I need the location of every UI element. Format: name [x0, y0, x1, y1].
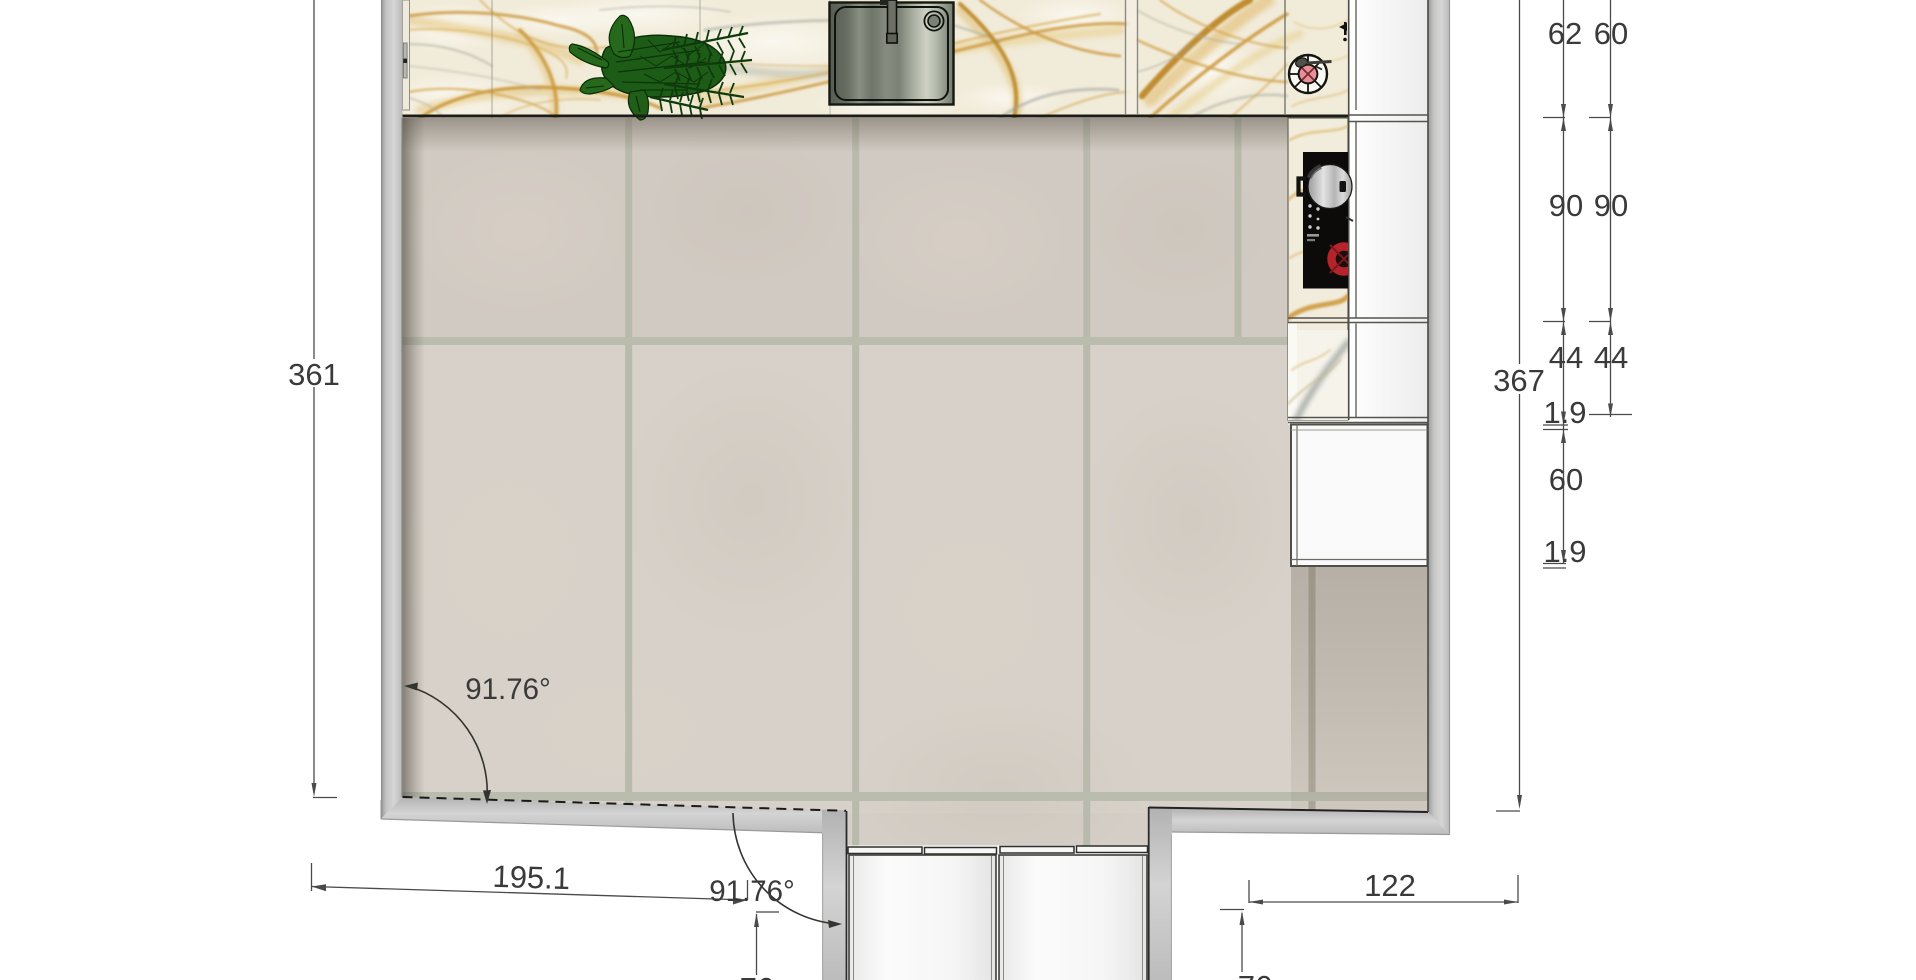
svg-text:44: 44: [1594, 340, 1628, 375]
svg-text:195.1: 195.1: [492, 859, 571, 896]
svg-text:91.76°: 91.76°: [709, 875, 795, 908]
svg-text:44: 44: [1549, 340, 1583, 375]
svg-text:367: 367: [1493, 363, 1545, 398]
svg-text:62: 62: [1548, 16, 1582, 51]
svg-text:76: 76: [1238, 969, 1272, 980]
svg-text:1.9: 1.9: [1543, 534, 1586, 569]
svg-text:60: 60: [1594, 16, 1628, 51]
svg-text:1.9: 1.9: [1543, 395, 1586, 430]
svg-text:60: 60: [1549, 462, 1583, 497]
svg-text:90: 90: [1549, 188, 1583, 223]
svg-text:76: 76: [740, 971, 774, 980]
svg-text:122: 122: [1364, 868, 1416, 903]
svg-text:361: 361: [288, 357, 340, 392]
svg-text:91.76°: 91.76°: [465, 673, 551, 706]
svg-text:90: 90: [1594, 188, 1628, 223]
